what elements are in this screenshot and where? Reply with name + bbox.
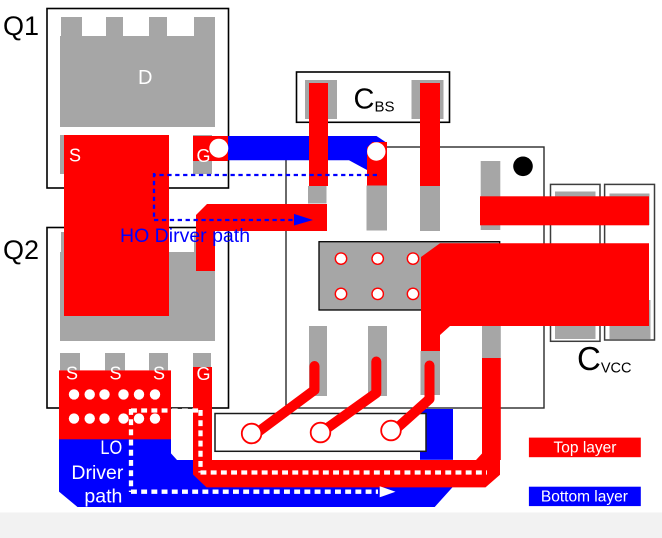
svg-text:Bottom layer: Bottom layer	[541, 488, 628, 505]
svg-text:S: S	[69, 146, 81, 166]
svg-text:LO: LO	[100, 437, 122, 459]
svg-text:S: S	[66, 364, 78, 384]
svg-text:D: D	[138, 67, 152, 89]
svg-text:S: S	[110, 364, 122, 384]
svg-text:Q2: Q2	[3, 235, 39, 265]
svg-text:HO Dirver path: HO Dirver path	[120, 225, 250, 247]
svg-text:G: G	[197, 146, 211, 166]
svg-text:path: path	[84, 486, 122, 508]
svg-text:Driver: Driver	[71, 462, 124, 484]
svg-text:S: S	[153, 364, 165, 384]
svg-text:G: G	[197, 364, 211, 384]
svg-text:Top layer: Top layer	[554, 439, 617, 456]
svg-text:Q1: Q1	[3, 11, 39, 41]
